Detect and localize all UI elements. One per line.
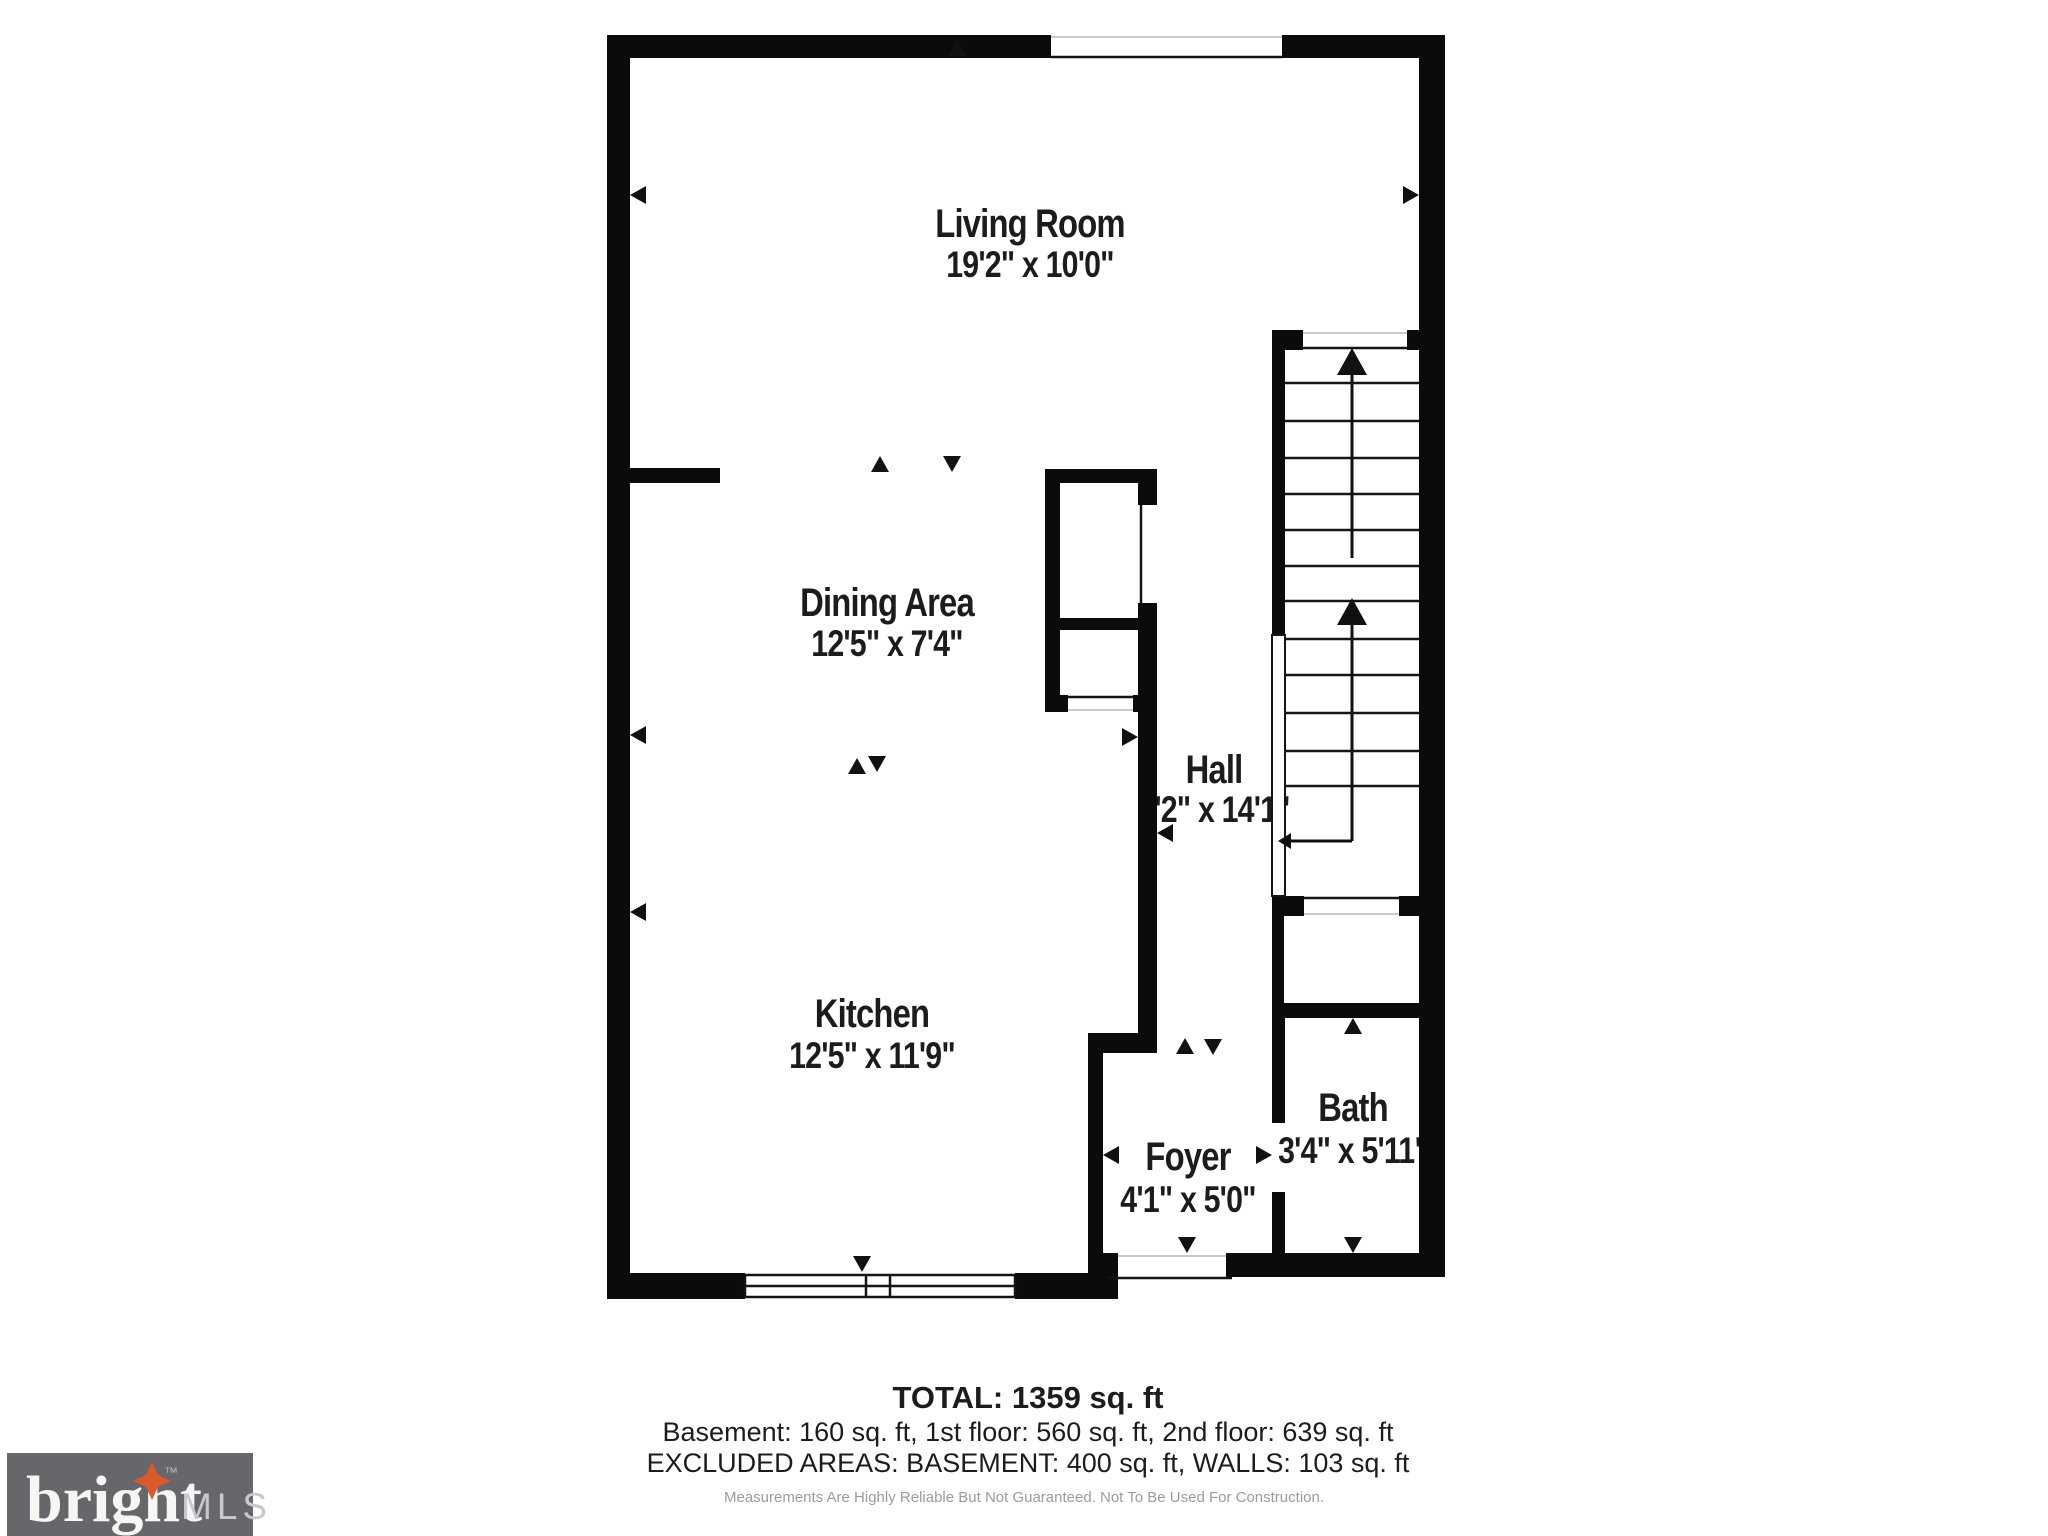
svg-text:12'5" x 11'9": 12'5" x 11'9" [789, 1035, 955, 1077]
area-summary: TOTAL: 1359 sq. ft Basement: 160 sq. ft,… [647, 1380, 1410, 1506]
dimension-arrow-icon [1178, 1237, 1196, 1253]
room-label-hall: Hall 3'2" x 14'1" [1138, 747, 1289, 831]
staircase [1272, 348, 1419, 896]
dimension-arrow-icon [1344, 1018, 1362, 1034]
room-labels: Living Room 19'2" x 10'0" Dining Area 12… [789, 201, 1428, 1221]
brand-logo: bright ™ MLS [7, 1453, 272, 1536]
trademark-symbol: ™ [164, 1464, 178, 1480]
floorplan-page: Living Room 19'2" x 10'0" Dining Area 12… [0, 0, 2048, 1536]
floor-breakdown-text: Basement: 160 sq. ft, 1st floor: 560 sq.… [663, 1417, 1394, 1447]
disclaimer-text: Measurements Are Highly Reliable But Not… [724, 1489, 1324, 1506]
svg-text:Kitchen: Kitchen [815, 991, 930, 1036]
svg-text:3'2" x 14'1": 3'2" x 14'1" [1138, 789, 1289, 831]
room-label-kitchen: Kitchen 12'5" x 11'9" [789, 991, 955, 1077]
svg-text:12'5" x 7'4": 12'5" x 7'4" [811, 623, 962, 665]
dimension-arrow-icon [1103, 1146, 1119, 1164]
svg-text:Dining Area: Dining Area [800, 580, 975, 625]
dimension-arrow-icon [630, 186, 646, 204]
total-area-text: TOTAL: 1359 sq. ft [892, 1380, 1163, 1415]
dimension-arrow-icon [630, 903, 646, 921]
stairs-up-arrow-icon [1278, 598, 1367, 849]
stair-railing [1272, 635, 1285, 896]
dimension-arrow-icon [848, 758, 866, 774]
closet-bottom-opening [1068, 697, 1133, 710]
kitchen-double-window [745, 1275, 1015, 1297]
room-label-dining-area: Dining Area 12'5" x 7'4" [800, 580, 975, 665]
dimension-arrow-icon [868, 756, 886, 772]
stair-top-opening [1303, 333, 1407, 348]
top-window [1051, 35, 1282, 58]
entry-door-opening [1108, 1256, 1232, 1278]
svg-text:Bath: Bath [1318, 1085, 1388, 1130]
svg-text:Hall: Hall [1186, 747, 1243, 792]
dimension-arrow-icon [1122, 728, 1138, 746]
svg-text:Living Room: Living Room [935, 201, 1125, 246]
dimension-arrow-icon [1344, 1237, 1362, 1253]
dimension-arrow-icon [630, 726, 646, 744]
excluded-areas-text: EXCLUDED AREAS: BASEMENT: 400 sq. ft, WA… [647, 1448, 1410, 1478]
dimension-arrow-icon [853, 1256, 871, 1272]
svg-text:Foyer: Foyer [1145, 1134, 1231, 1179]
dimension-arrow-icon [871, 456, 889, 472]
room-label-living-room: Living Room 19'2" x 10'0" [935, 201, 1125, 286]
dimension-arrow-icon [1204, 1039, 1222, 1055]
floorplan-canvas: Living Room 19'2" x 10'0" Dining Area 12… [0, 0, 2048, 1536]
dimension-arrow-icon [1176, 1038, 1194, 1054]
room-label-bath: Bath 3'4" x 5'11" [1278, 1085, 1428, 1172]
stairs-up-arrow-icon [1337, 348, 1367, 558]
stair-bottom-opening [1304, 898, 1399, 914]
logo-mls-text: MLS [181, 1486, 272, 1527]
dimension-arrow-icon [1403, 186, 1419, 204]
svg-text:3'4" x 5'11": 3'4" x 5'11" [1278, 1130, 1428, 1172]
dimension-arrow-icon [1256, 1146, 1272, 1164]
svg-text:4'1" x 5'0": 4'1" x 5'0" [1120, 1179, 1255, 1221]
room-label-foyer: Foyer 4'1" x 5'0" [1120, 1134, 1255, 1221]
svg-text:19'2" x 10'0": 19'2" x 10'0" [946, 244, 1113, 286]
dimension-arrow-icon [943, 456, 961, 472]
